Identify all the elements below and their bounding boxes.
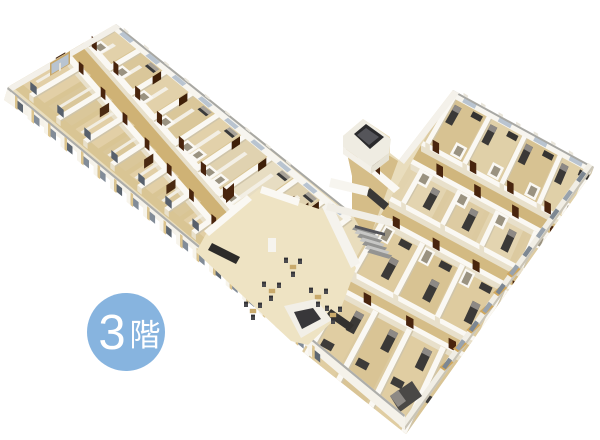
svg-text:3: 3 <box>98 306 125 360</box>
svg-text:階: 階 <box>130 318 161 353</box>
